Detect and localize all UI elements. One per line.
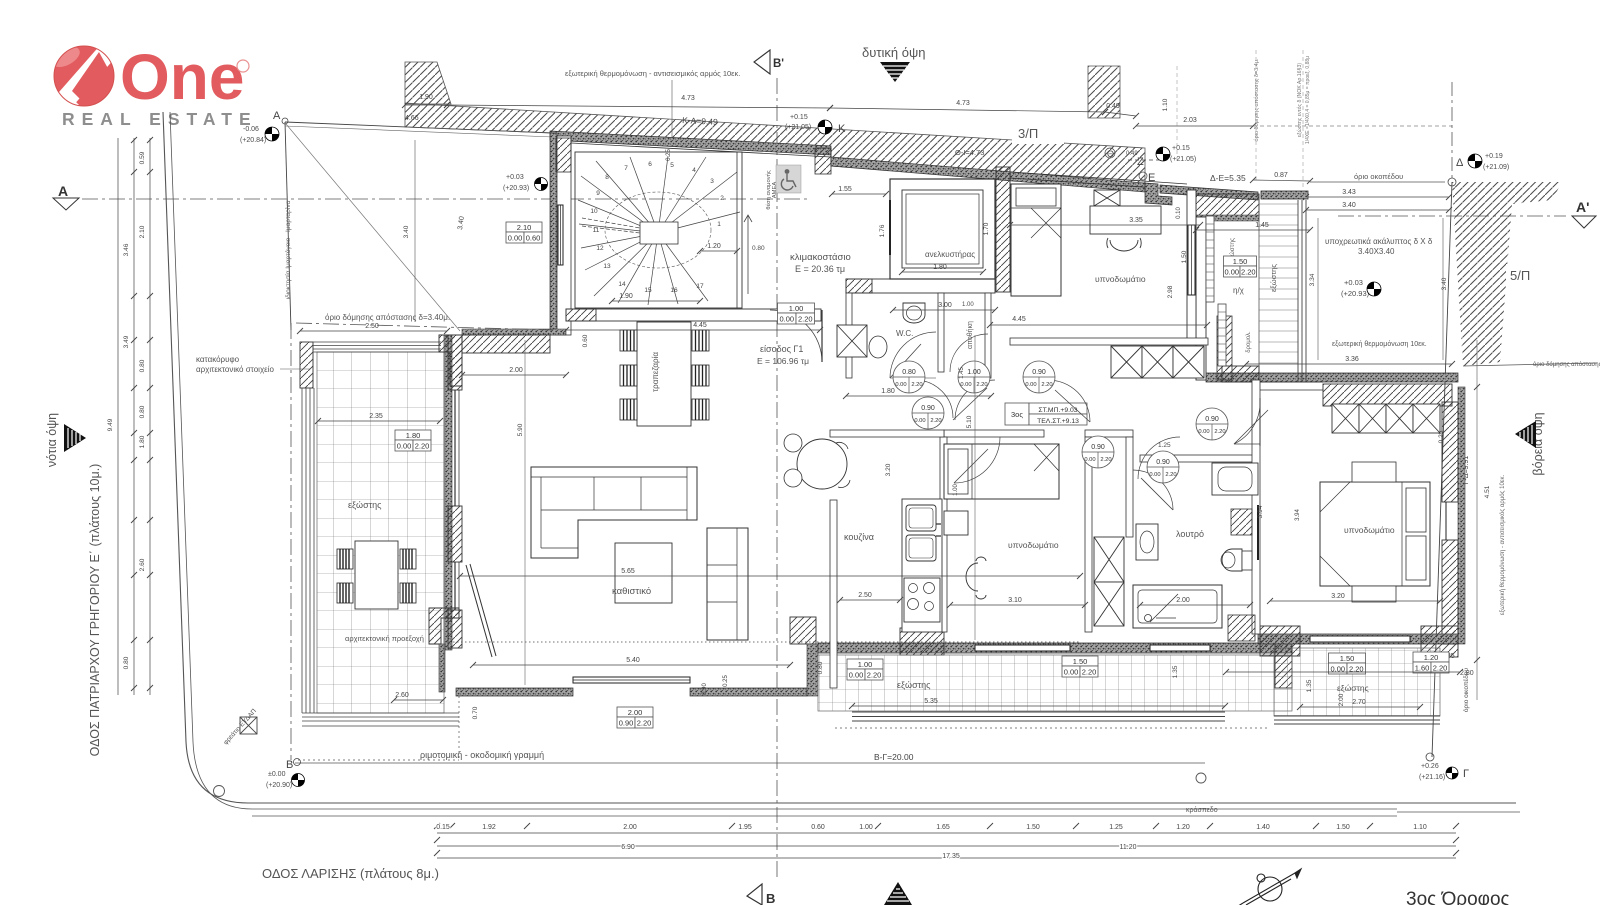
svg-text:1.00: 1.00: [859, 824, 873, 831]
svg-text:A': A': [1576, 199, 1589, 215]
svg-text:Θ-Ι=4.73: Θ-Ι=4.73: [955, 148, 984, 157]
svg-text:θέση αναμονής: θέση αναμονής: [765, 170, 772, 210]
svg-text:1.70: 1.70: [983, 222, 990, 235]
svg-text:1: 1: [717, 221, 721, 228]
svg-text:1.00: 1.00: [962, 302, 974, 308]
svg-text:1.10: 1.10: [1413, 824, 1427, 831]
svg-text:1.76: 1.76: [879, 224, 886, 237]
svg-text:2.20: 2.20: [930, 418, 941, 424]
svg-text:ΑΜΕΑ: ΑΜΕΑ: [772, 182, 778, 199]
svg-text:(+20.84): (+20.84): [240, 137, 266, 144]
svg-text:3: 3: [710, 178, 714, 185]
svg-text:2.50: 2.50: [365, 323, 379, 330]
svg-text:εξώστης εντός δ (ΝΟΚ Αρ.16§3): εξώστης εντός δ (ΝΟΚ Αρ.16§3): [1296, 63, 1303, 137]
svg-text:1.95: 1.95: [738, 824, 752, 831]
svg-text:καθιστικό: καθιστικό: [612, 586, 651, 597]
svg-text:δρομολ.: δρομολ.: [1246, 331, 1252, 353]
svg-text:2.70: 2.70: [1352, 699, 1366, 706]
svg-text:4.51: 4.51: [1484, 485, 1491, 498]
svg-text:12: 12: [596, 245, 604, 252]
svg-text:±0.00: ±0.00: [268, 771, 286, 778]
svg-text:αρχιτεκτονικό στοιχείο: αρχιτεκτονικό στοιχείο: [196, 365, 274, 374]
svg-text:4.73: 4.73: [681, 95, 695, 102]
svg-text:+0.03: +0.03: [1344, 278, 1363, 287]
svg-text:εξώστης: εξώστης: [348, 500, 382, 510]
svg-text:2.80: 2.80: [1460, 670, 1474, 677]
svg-text:1.20: 1.20: [1424, 653, 1439, 662]
svg-text:8: 8: [605, 174, 609, 181]
svg-text:0.90: 0.90: [1205, 416, 1219, 423]
svg-text:νότια όψη: νότια όψη: [45, 413, 59, 467]
svg-text:4.45: 4.45: [693, 322, 707, 329]
svg-text:3.40: 3.40: [403, 225, 410, 238]
svg-text:1.50: 1.50: [1233, 257, 1248, 266]
svg-text:1.35: 1.35: [1306, 679, 1313, 692]
svg-text:Ζ: Ζ: [1137, 156, 1144, 168]
svg-text:0.60: 0.60: [811, 824, 825, 831]
svg-text:3.36: 3.36: [1345, 356, 1359, 363]
svg-text:14: 14: [618, 281, 626, 288]
svg-text:2.60: 2.60: [395, 692, 409, 699]
svg-text:4.73: 4.73: [956, 100, 970, 107]
svg-text:0.49: 0.49: [1106, 103, 1120, 110]
svg-text:3.00: 3.00: [938, 302, 952, 309]
svg-text:Ε: Ε: [1148, 172, 1155, 184]
svg-text:7: 7: [624, 165, 628, 172]
svg-text:3.35: 3.35: [1129, 217, 1143, 224]
svg-text:3.40: 3.40: [1342, 202, 1356, 209]
svg-text:υπνοδωμάτιο: υπνοδωμάτιο: [1008, 540, 1059, 550]
svg-text:ΣΤ.ΜΠ.+9.03: ΣΤ.ΜΠ.+9.03: [1038, 407, 1077, 414]
svg-text:0.90: 0.90: [1156, 459, 1170, 466]
svg-text:εξωτερική θερμομόνωση 10εκ.: εξωτερική θερμομόνωση 10εκ.: [1332, 340, 1427, 348]
svg-text:0.10: 0.10: [1176, 207, 1182, 219]
svg-text:0.00: 0.00: [914, 418, 925, 424]
svg-text:0.90: 0.90: [1032, 369, 1046, 376]
svg-text:3.94: 3.94: [1257, 505, 1264, 518]
svg-text:2.20: 2.20: [1165, 472, 1176, 478]
svg-text:0.80: 0.80: [139, 359, 146, 372]
svg-text:9.49: 9.49: [107, 418, 114, 431]
svg-text:2.50: 2.50: [858, 592, 872, 599]
svg-text:5.10: 5.10: [966, 415, 973, 428]
svg-text:(+21.05): (+21.05): [1170, 156, 1196, 163]
svg-text:2.00: 2.00: [1176, 597, 1190, 604]
svg-text:+0.19: +0.19: [1485, 153, 1503, 160]
svg-text:υπνοδωμάτιο: υπνοδωμάτιο: [1095, 274, 1146, 284]
svg-text:η/χ: η/χ: [1233, 286, 1245, 295]
svg-text:2.00: 2.00: [628, 708, 643, 717]
svg-text:1.80: 1.80: [139, 435, 146, 448]
svg-text:3.20: 3.20: [885, 463, 892, 476]
svg-text:A: A: [58, 183, 68, 199]
svg-text:0.49: 0.49: [1126, 151, 1138, 157]
svg-text:0.80: 0.80: [139, 405, 146, 418]
svg-text:Δ-Ε=5.35: Δ-Ε=5.35: [1210, 173, 1246, 183]
svg-text:1.00: 1.00: [967, 369, 981, 376]
svg-text:0.80: 0.80: [902, 369, 916, 376]
svg-text:Κ: Κ: [838, 123, 846, 135]
svg-text:0.00: 0.00: [397, 442, 412, 451]
svg-text:+0.15: +0.15: [790, 114, 808, 121]
svg-text:0.90: 0.90: [702, 683, 708, 695]
svg-text:(+21.05): (+21.05): [785, 124, 811, 131]
svg-text:2: 2: [720, 195, 724, 202]
svg-text:(+20.90): (+20.90): [266, 782, 292, 789]
svg-text:όριο δόμησης απόστασης δ=3.40μ: όριο δόμησης απόστασης δ=3.40μ.: [325, 313, 450, 322]
svg-text:Ε = 106.96 τμ: Ε = 106.96 τμ: [757, 356, 809, 366]
svg-text:κατακόρυφο: κατακόρυφο: [196, 355, 240, 364]
svg-text:3.40: 3.40: [1441, 277, 1448, 290]
svg-text:κλιμακοστάσιο: κλιμακοστάσιο: [790, 252, 851, 263]
svg-text:1.90: 1.90: [619, 293, 633, 300]
svg-text:Δ: Δ: [1456, 157, 1464, 169]
svg-text:0.80: 0.80: [123, 656, 130, 669]
svg-text:1.45: 1.45: [1255, 222, 1269, 229]
svg-text:κουζίνα: κουζίνα: [844, 532, 874, 542]
svg-text:3.46: 3.46: [123, 243, 130, 256]
svg-text:2.00: 2.00: [623, 824, 637, 831]
svg-text:0.60: 0.60: [582, 334, 589, 347]
svg-text:εξώστης: εξώστης: [1269, 264, 1278, 292]
svg-text:+0.03: +0.03: [506, 174, 524, 181]
svg-text:κράσπεδο: κράσπεδο: [1186, 806, 1218, 814]
svg-text:1.55: 1.55: [838, 186, 852, 193]
svg-text:2.20: 2.20: [415, 442, 430, 451]
svg-text:1.50: 1.50: [1336, 824, 1350, 831]
svg-text:Β: Β: [286, 759, 293, 771]
svg-text:2.20: 2.20: [637, 719, 652, 728]
svg-text:17.35: 17.35: [942, 853, 960, 860]
svg-text:ριμοτομική - οκοδομική γραμμή: ριμοτομική - οκοδομική γραμμή: [420, 750, 544, 760]
svg-text:(+21.16): (+21.16): [1419, 774, 1445, 781]
svg-text:2.00: 2.00: [1338, 693, 1345, 706]
svg-text:2.20: 2.20: [1041, 382, 1052, 388]
svg-text:1.50: 1.50: [1026, 824, 1040, 831]
svg-text:0.60: 0.60: [526, 234, 541, 243]
svg-text:1.80: 1.80: [881, 388, 895, 395]
svg-text:1.80: 1.80: [406, 431, 421, 440]
svg-text:3/Π: 3/Π: [1018, 126, 1038, 141]
svg-text:2.20: 2.20: [1100, 457, 1111, 463]
svg-text:υποχρεωτικά ακάλυπτος δ Χ δ: υποχρεωτικά ακάλυπτος δ Χ δ: [1325, 237, 1433, 246]
svg-text:0.90: 0.90: [1091, 444, 1105, 451]
svg-text:όριο δόμησης απόστασης δ=3.4μ.: όριο δόμησης απόστασης δ=3.4μ.: [1253, 58, 1260, 141]
svg-text:6.90: 6.90: [621, 844, 635, 851]
svg-text:όριο δόμησης απόστασης δ=3.40μ: όριο δόμησης απόστασης δ=3.40μ.: [1533, 361, 1600, 368]
svg-text:9: 9: [596, 190, 600, 197]
svg-text:εξωτερική θερμομόνωση - αντισε: εξωτερική θερμομόνωση - αντισεισμικός αρ…: [1499, 475, 1506, 616]
svg-text:10: 10: [590, 208, 598, 215]
svg-text:1.00: 1.00: [953, 484, 959, 496]
svg-text:2.20: 2.20: [911, 382, 922, 388]
svg-text:1.10: 1.10: [1162, 98, 1169, 111]
svg-text:5.90: 5.90: [517, 423, 524, 436]
svg-text:2.03: 2.03: [1183, 117, 1197, 124]
svg-text:1.60: 1.60: [1415, 664, 1430, 673]
svg-text:1.45: 1.45: [959, 367, 965, 379]
svg-text:One: One: [120, 41, 244, 113]
svg-text:0.00: 0.00: [1025, 382, 1036, 388]
svg-text:1.00: 1.00: [789, 304, 804, 313]
svg-text:3.40Χ3.40: 3.40Χ3.40: [1358, 247, 1395, 256]
svg-text:Γ: Γ: [1463, 768, 1469, 780]
svg-text:2.20: 2.20: [1433, 664, 1448, 673]
svg-text:0.00: 0.00: [895, 382, 906, 388]
svg-text:0.00: 0.00: [1198, 429, 1209, 435]
svg-text:3.10: 3.10: [1008, 597, 1022, 604]
svg-text:4: 4: [692, 167, 696, 174]
svg-text:όριο οκοπέδου: όριο οκοπέδου: [1354, 172, 1403, 181]
svg-text:1.50: 1.50: [1181, 250, 1188, 263]
svg-text:3.20: 3.20: [1331, 593, 1345, 600]
svg-text:1.25: 1.25: [1158, 442, 1171, 449]
svg-text:0.00: 0.00: [508, 234, 523, 243]
svg-text:16: 16: [670, 287, 678, 294]
svg-text:ΤΕΛ.ΣΤ.+9.13: ΤΕΛ.ΣΤ.+9.13: [1037, 418, 1079, 425]
svg-text:+0.26: +0.26: [1421, 763, 1439, 770]
svg-text:3ος: 3ος: [1011, 410, 1023, 419]
svg-text:1/4ΧΕ =1/4Χ0,4 = 0,85μ = προεξ: 1/4ΧΕ =1/4Χ0,4 = 0,85μ = προεξ. 0,88μ: [1305, 56, 1311, 144]
svg-text:17: 17: [696, 283, 704, 290]
svg-text:Ε = 20.36 τμ: Ε = 20.36 τμ: [795, 264, 845, 274]
svg-text:εξώστης: εξώστης: [897, 680, 931, 690]
svg-text:2.10: 2.10: [139, 225, 146, 238]
svg-text:1.35: 1.35: [1172, 665, 1179, 678]
svg-text:B': B': [773, 58, 784, 70]
svg-text:0.25: 0.25: [666, 149, 672, 161]
svg-text:2.20: 2.20: [867, 671, 882, 680]
svg-text:4.45: 4.45: [1012, 316, 1026, 323]
svg-text:2.10: 2.10: [517, 223, 532, 232]
svg-text:1.20: 1.20: [707, 243, 721, 250]
svg-text:3.94: 3.94: [1295, 509, 1301, 521]
svg-text:Κ-Α=9.49: Κ-Α=9.49: [682, 115, 718, 127]
svg-text:+0.15: +0.15: [1172, 145, 1190, 152]
svg-text:5.35: 5.35: [924, 698, 938, 705]
svg-text:0.00: 0.00: [849, 671, 864, 680]
svg-text:2.20: 2.20: [798, 315, 813, 324]
svg-text:2.98: 2.98: [1167, 285, 1174, 298]
svg-text:1.20: 1.20: [1176, 824, 1190, 831]
svg-text:Β-Γ=20.00: Β-Γ=20.00: [874, 752, 914, 762]
svg-text:5/Π: 5/Π: [1510, 268, 1530, 283]
svg-text:1.80: 1.80: [933, 264, 947, 271]
svg-text:λουτρό: λουτρό: [1176, 529, 1204, 539]
svg-text:2.35: 2.35: [369, 413, 383, 420]
svg-text:1.00: 1.00: [858, 660, 873, 669]
svg-text:0.59: 0.59: [139, 151, 146, 164]
svg-text:3.34: 3.34: [1309, 273, 1316, 286]
svg-text:0.00: 0.00: [779, 315, 794, 324]
svg-text:3.49: 3.49: [123, 335, 130, 348]
svg-text:0.25: 0.25: [723, 675, 729, 687]
svg-text:5.65: 5.65: [621, 568, 635, 575]
svg-text:5.40: 5.40: [626, 657, 640, 664]
svg-text:2.20: 2.20: [1214, 429, 1225, 435]
svg-text:ΟΔΟΣ ΠΑΤΡΙΑΡΧΟΥ ΓΡΗΓΟΡΙΟΥ Ε΄ (: ΟΔΟΣ ΠΑΤΡΙΑΡΧΟΥ ΓΡΗΓΟΡΙΟΥ Ε΄ (πλάτους 10…: [88, 464, 102, 757]
svg-text:6: 6: [648, 161, 652, 168]
svg-text:0.70: 0.70: [472, 706, 479, 719]
svg-text:1.40: 1.40: [1256, 824, 1270, 831]
svg-text:3ος Όροφος: 3ος Όροφος: [1406, 889, 1510, 905]
svg-text:0.00: 0.00: [1149, 472, 1160, 478]
svg-text:εξώστης: εξώστης: [1337, 683, 1369, 693]
svg-text:(+21.09): (+21.09): [1483, 164, 1509, 171]
svg-text:11: 11: [593, 227, 600, 234]
svg-text:0.00: 0.00: [1224, 268, 1239, 277]
svg-text:0.00: 0.00: [1084, 457, 1095, 463]
svg-text:2.00: 2.00: [509, 367, 523, 374]
svg-text:ανελκυστήρας: ανελκυστήρας: [925, 250, 975, 259]
svg-text:1.50: 1.50: [1340, 654, 1355, 663]
svg-text:1.50: 1.50: [1073, 657, 1088, 666]
svg-text:15: 15: [644, 287, 652, 294]
svg-text:2.20: 2.20: [1082, 668, 1097, 677]
svg-text:αποθήκη: αποθήκη: [967, 321, 974, 349]
svg-text:0.87: 0.87: [1274, 172, 1288, 179]
svg-text:εξωτερική θερμομόνωση - αντισε: εξωτερική θερμομόνωση - αντισεισμικός αρ…: [565, 69, 740, 78]
svg-text:5: 5: [670, 162, 674, 169]
svg-text:3.43: 3.43: [1342, 189, 1356, 196]
svg-text:0.00: 0.00: [1064, 668, 1079, 677]
svg-text:υπνοδωμάτιο: υπνοδωμάτιο: [1344, 525, 1395, 535]
svg-text:2.20: 2.20: [976, 382, 987, 388]
svg-text:11.20: 11.20: [1120, 844, 1137, 851]
svg-text:-0.06: -0.06: [243, 126, 259, 133]
svg-text:τραπεζαρία: τραπεζαρία: [651, 352, 660, 392]
svg-text:1.25: 1.25: [1109, 824, 1123, 831]
svg-text:0.15: 0.15: [436, 824, 450, 831]
svg-text:0.90: 0.90: [921, 405, 935, 412]
svg-text:είσοδος Γ1: είσοδος Γ1: [760, 344, 803, 354]
svg-text:(+20.93): (+20.93): [1341, 289, 1370, 298]
svg-text:A: A: [273, 110, 281, 122]
svg-text:ιδιοκτησία Ιμαρτόγοιο - Ιμαρτα: ιδιοκτησία Ιμαρτόγοιο - Ιμαρταρίνα: [284, 200, 292, 299]
svg-text:0.90: 0.90: [619, 719, 634, 728]
svg-text:1.65: 1.65: [936, 824, 950, 831]
svg-text:2.60: 2.60: [139, 558, 146, 571]
svg-text:(+20.93): (+20.93): [503, 185, 529, 192]
svg-text:ΟΔΟΣ ΛΑΡΙΣΗΣ (πλάτους 8μ.): ΟΔΟΣ ΛΑΡΙΣΗΣ (πλάτους 8μ.): [262, 866, 439, 881]
svg-text:2.20: 2.20: [1241, 268, 1256, 277]
svg-text:αρχιτεκτονική προεξοχή: αρχιτεκτονική προεξοχή: [345, 634, 424, 643]
svg-text:δυτική όψη: δυτική όψη: [862, 45, 925, 60]
svg-text:0.80: 0.80: [752, 245, 765, 252]
svg-text:W.C.: W.C.: [896, 329, 913, 338]
svg-text:1.92: 1.92: [482, 824, 496, 831]
svg-text:1.90: 1.90: [419, 94, 433, 101]
svg-text:0.80: 0.80: [817, 661, 824, 674]
svg-text:REAL ESTATE: REAL ESTATE: [62, 109, 258, 129]
svg-text:13: 13: [603, 263, 611, 270]
svg-text:0.00: 0.00: [960, 382, 971, 388]
svg-text:B: B: [766, 891, 775, 905]
